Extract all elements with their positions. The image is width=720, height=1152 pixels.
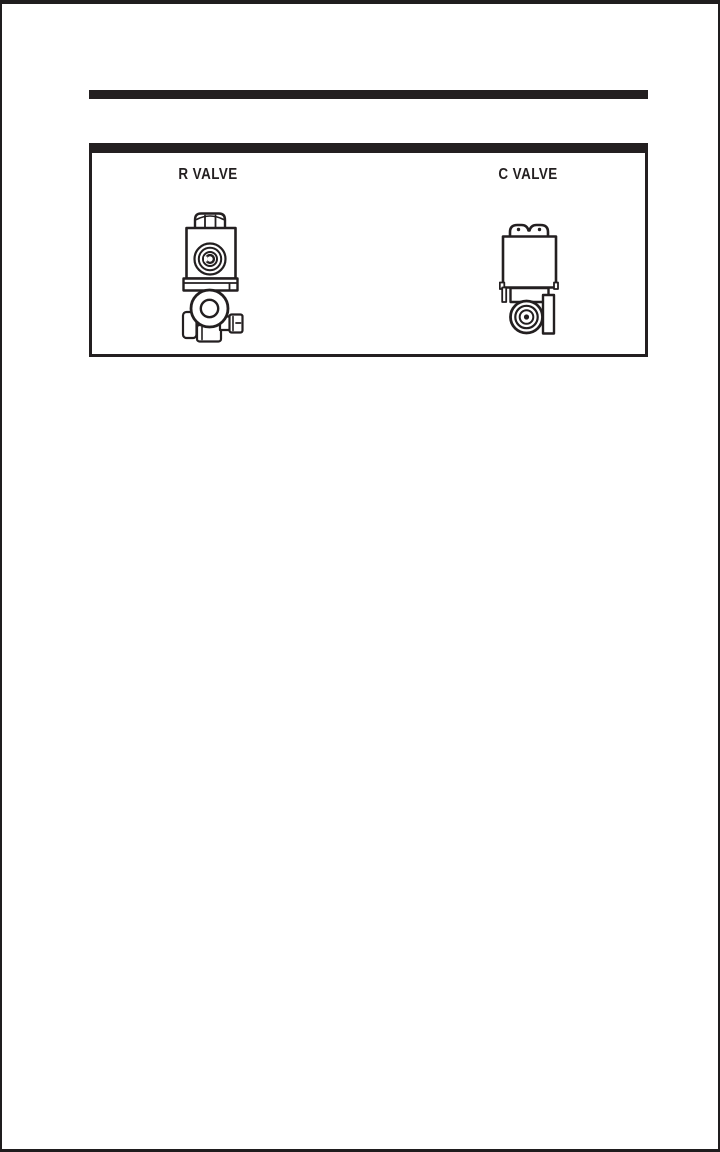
r-valve-drawing-icon <box>179 209 247 347</box>
c-valve-drawing-icon <box>499 222 559 338</box>
document-page: R VALVE C VALVE <box>0 0 720 1152</box>
r-valve-label: R VALVE <box>178 166 237 184</box>
c-valve-label: C VALVE <box>498 166 557 184</box>
section-divider-rule <box>89 90 648 99</box>
valve-figure-panel: R VALVE C VALVE <box>89 143 648 357</box>
